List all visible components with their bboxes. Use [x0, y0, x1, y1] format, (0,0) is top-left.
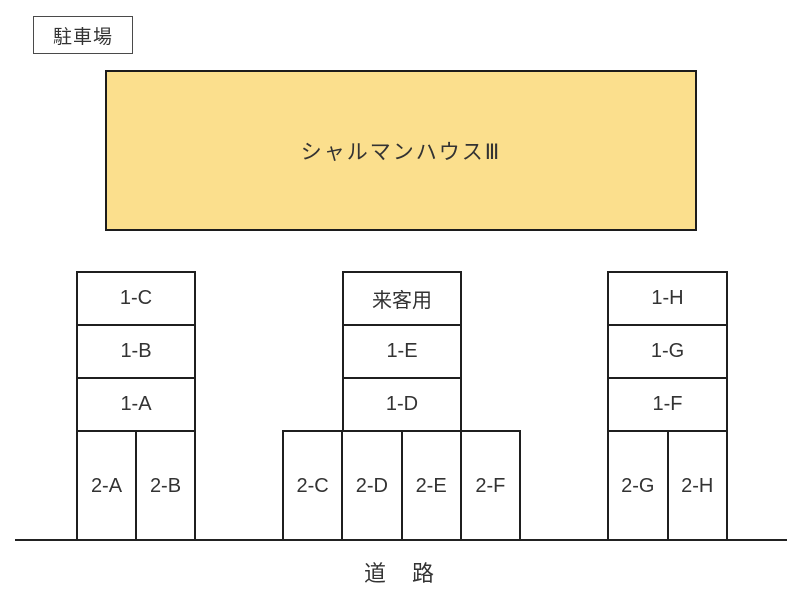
parking-space-1h: 1-H	[609, 273, 726, 324]
parking-space-1a: 1-A	[78, 377, 194, 430]
parking-space-visitor: 来客用	[344, 273, 460, 324]
building-name: シャルマンハウスⅢ	[301, 136, 501, 166]
parking-space-label: 1-G	[651, 340, 684, 363]
road-line	[15, 539, 787, 541]
parking-space-2d: 2-D	[341, 432, 400, 541]
parking-space-label: 2-A	[91, 475, 122, 498]
center-row-spaces: 来客用 1-E 1-D	[342, 271, 462, 432]
parking-space-2f: 2-F	[460, 432, 519, 541]
parking-space-2h: 2-H	[667, 432, 727, 541]
parking-lot-title: 駐車場	[53, 22, 113, 49]
building-block: シャルマンハウスⅢ	[105, 70, 697, 231]
parking-space-1g: 1-G	[609, 324, 726, 377]
parking-space-1d: 1-D	[344, 377, 460, 430]
parking-space-1b: 1-B	[78, 324, 194, 377]
parking-map: 駐車場 シャルマンハウスⅢ 1-C 1-B 1-A 2-A 2-B 来客用 1-…	[0, 0, 800, 600]
parking-space-label: 2-E	[416, 475, 447, 498]
parking-space-label: 1-F	[653, 393, 683, 416]
parking-space-2e: 2-E	[401, 432, 460, 541]
parking-space-label: 1-B	[120, 340, 151, 363]
parking-space-label: 2-G	[621, 475, 654, 498]
parking-space-label: 2-D	[356, 475, 388, 498]
parking-space-label: 2-H	[681, 475, 713, 498]
road-label: 道 路	[0, 556, 800, 588]
parking-space-2c: 2-C	[284, 432, 341, 541]
parking-space-label: 1-H	[651, 287, 683, 310]
parking-space-1f: 1-F	[609, 377, 726, 430]
center-stall-spaces: 2-C 2-D 2-E 2-F	[282, 430, 521, 541]
parking-space-label: 1-D	[386, 393, 418, 416]
parking-space-2a: 2-A	[78, 432, 135, 541]
parking-space-2g: 2-G	[609, 432, 667, 541]
parking-space-label: 1-E	[386, 340, 417, 363]
left-row-spaces: 1-C 1-B 1-A	[76, 271, 196, 432]
parking-space-label: 2-B	[150, 475, 181, 498]
parking-space-label: 2-F	[475, 475, 505, 498]
parking-space-1c: 1-C	[78, 273, 194, 324]
parking-space-label: 来客用	[372, 284, 432, 313]
right-row-spaces: 1-H 1-G 1-F	[607, 271, 728, 432]
parking-space-label: 1-A	[120, 393, 151, 416]
right-stall-spaces: 2-G 2-H	[607, 430, 728, 541]
parking-space-label: 2-C	[297, 475, 329, 498]
left-stall-spaces: 2-A 2-B	[76, 430, 196, 541]
parking-space-label: 1-C	[120, 287, 152, 310]
parking-space-1e: 1-E	[344, 324, 460, 377]
parking-lot-title-box: 駐車場	[33, 16, 133, 54]
parking-space-2b: 2-B	[135, 432, 194, 541]
